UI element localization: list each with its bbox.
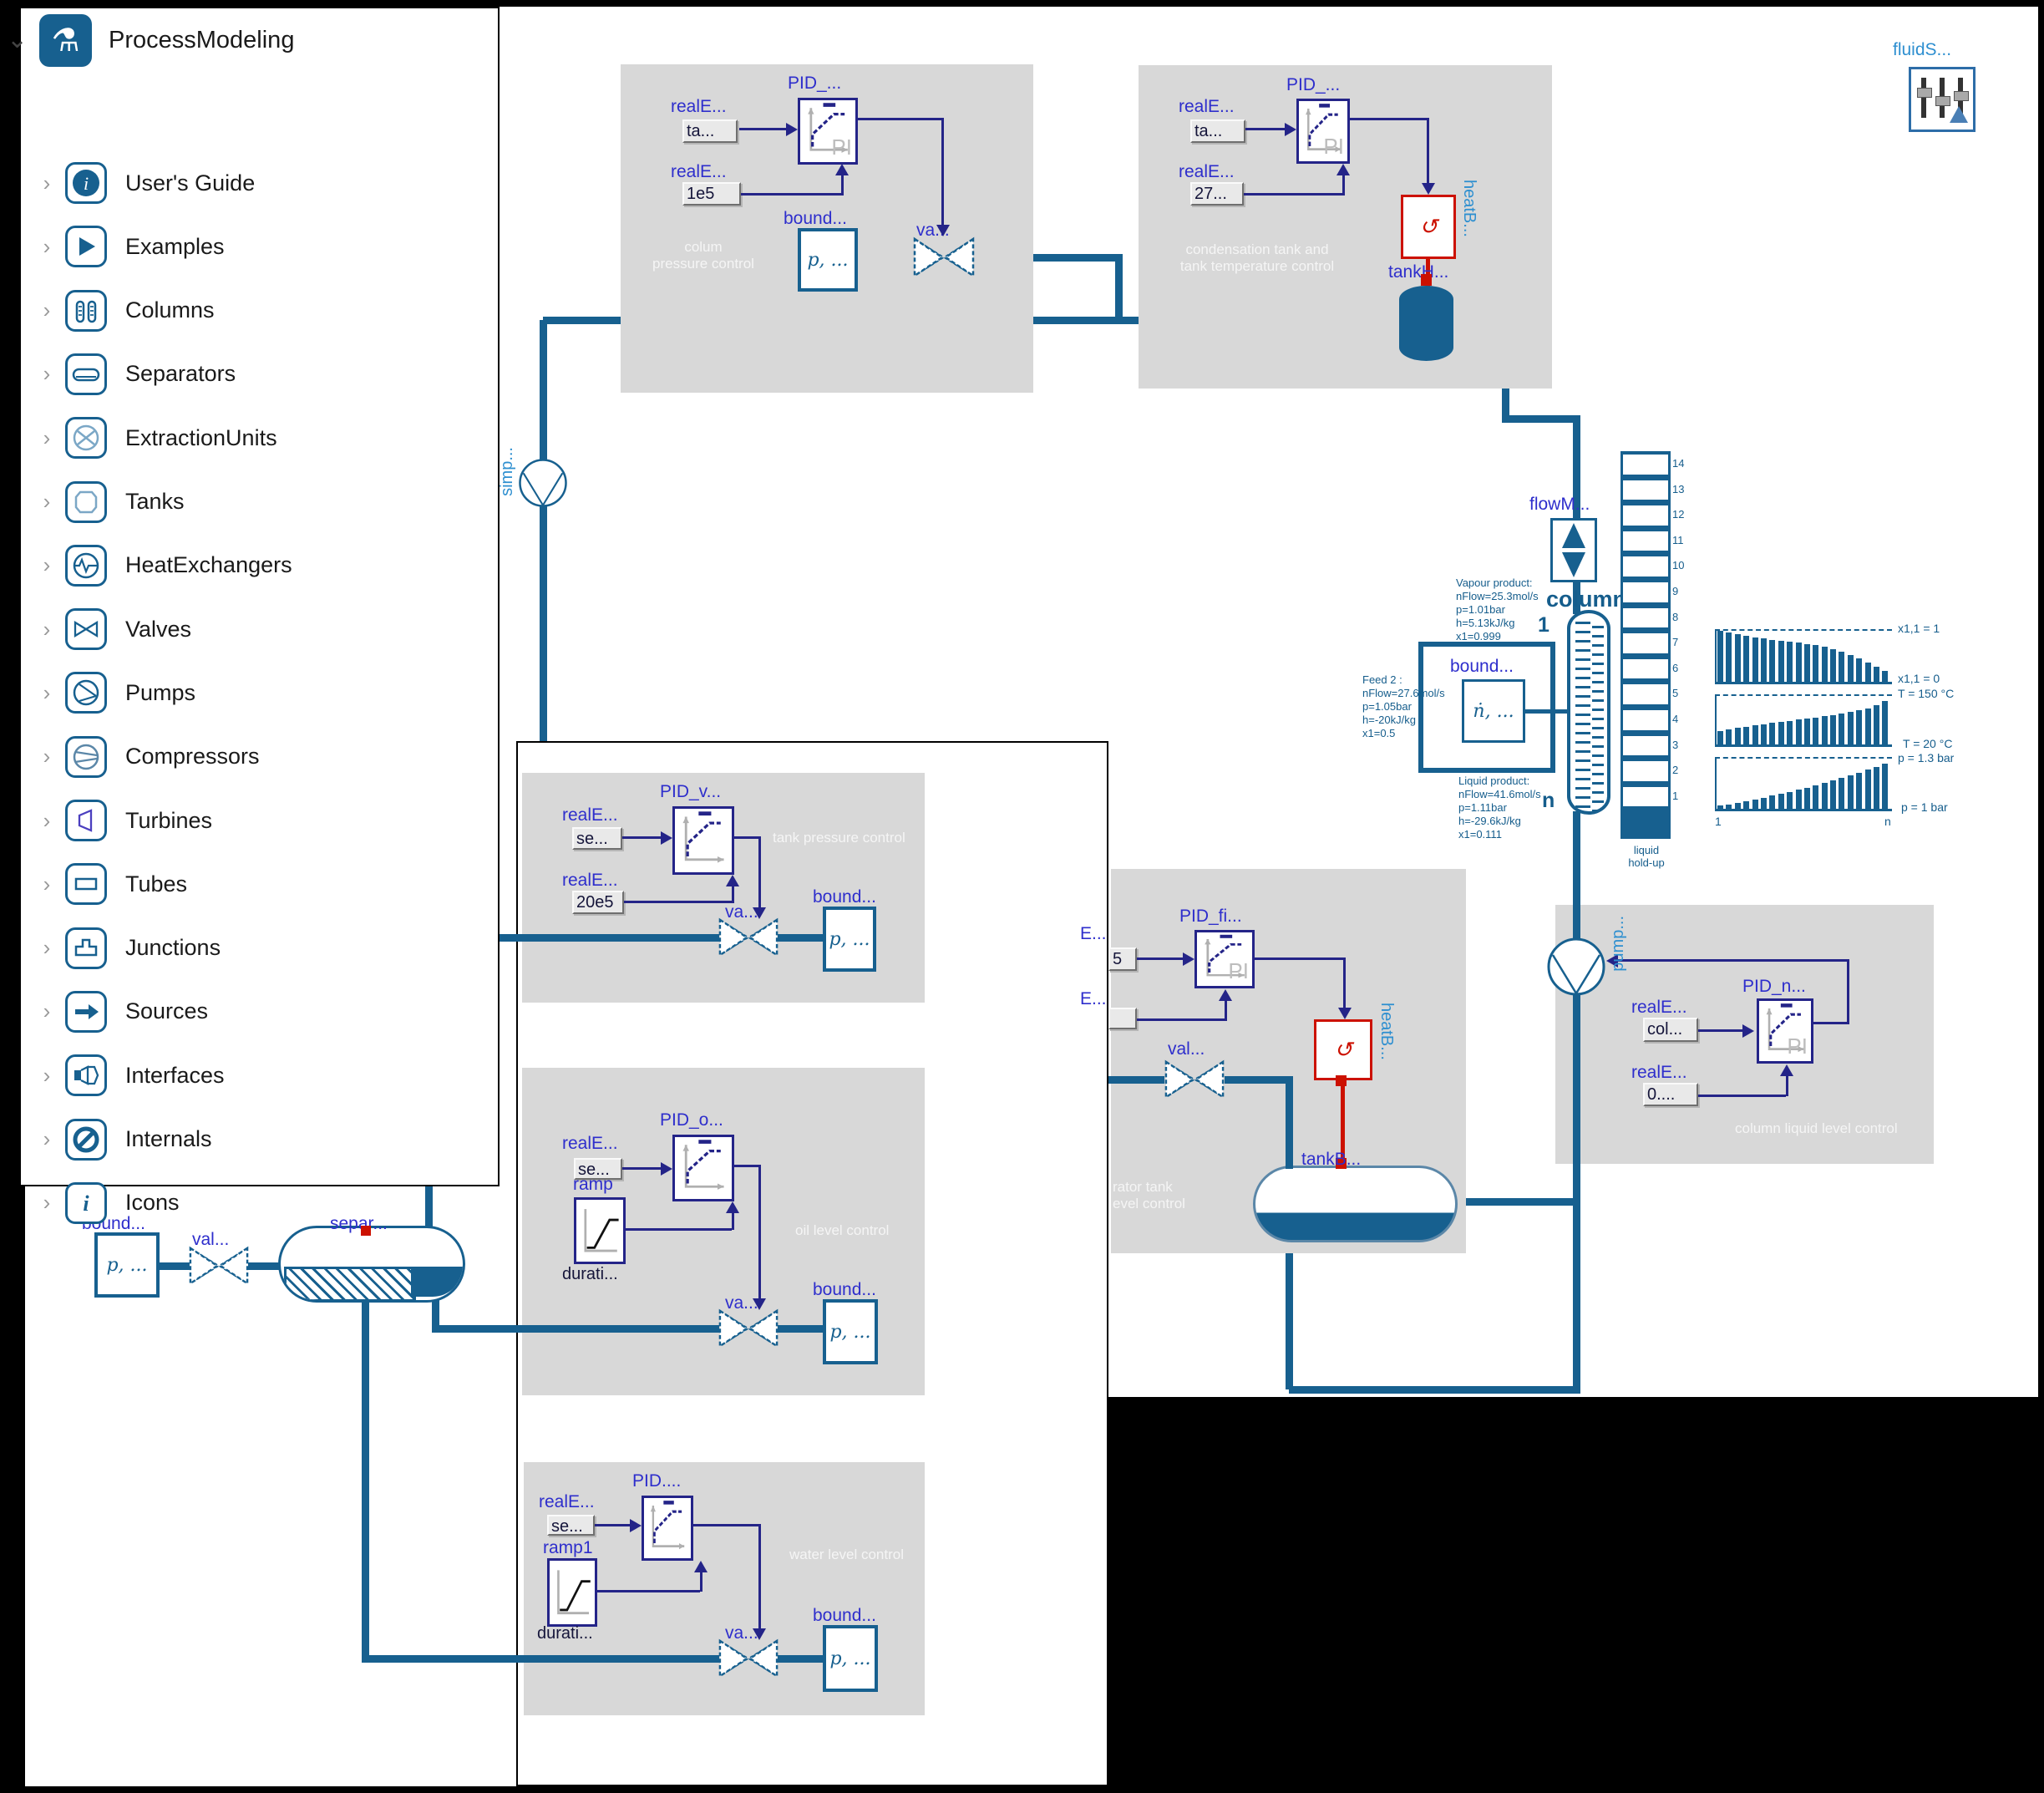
chevron-right-icon[interactable]: › [35,998,58,1024]
ramp-duration-label: durati... [562,1265,618,1284]
signal-wire [1137,1018,1225,1021]
sidebar-item-columns[interactable]: › Columns [0,279,2044,343]
arrow-right-icon [661,1162,672,1176]
fluid-source-block[interactable] [1909,67,1976,132]
boundary-sink[interactable]: p, ... [823,1625,878,1692]
realE-label: realE... [1179,97,1235,117]
control-valve[interactable] [718,1638,779,1679]
tank-pressure-control-title: tank pressure control [773,830,905,846]
sidebar-item-heatexchangers[interactable]: › HeatExchangers [0,534,2044,597]
realE-ref-block[interactable] [1108,1008,1137,1029]
pid-controller[interactable] [672,1135,734,1201]
signal-wire [758,1165,761,1298]
tube-icon [65,863,107,905]
internal-icon [65,1119,107,1161]
chevron-right-icon[interactable]: › [35,808,58,834]
separator-icon [65,353,107,395]
pid-label: PID_v... [660,782,721,802]
play-icon [65,226,107,267]
svg-text:i: i [84,173,89,194]
compressor-icon [65,736,107,778]
info-icon: i [65,162,107,204]
pid-controller[interactable] [672,806,734,875]
turbine-icon [65,800,107,841]
realE-setpoint-block[interactable]: 5 [1108,947,1137,971]
signal-wire [732,885,734,903]
arrow-up-icon [694,1561,708,1572]
sidebar-item-extractionunits[interactable]: › ExtractionUnits [0,406,2044,470]
sidebar-item-sources[interactable]: › Sources [0,980,2044,1044]
pipe [1286,1244,1293,1389]
columns-icon [65,290,107,332]
pid-label: PID.... [632,1471,681,1491]
feed-valve[interactable] [188,1246,250,1286]
pid-label: PID_o... [660,1110,723,1130]
pipe [160,1262,190,1270]
pid-label: PID_... [1286,75,1340,95]
chevron-right-icon[interactable]: › [35,297,58,323]
svg-text:i: i [83,1191,89,1216]
fluid-source-label: fluidS... [1893,40,1951,60]
arrow-right-icon [630,1519,642,1532]
signal-wire [626,1228,732,1231]
realE-label: E... [1080,989,1107,1009]
sidebar-item-interfaces[interactable]: › Interfaces [0,1044,2044,1107]
ramp-label: ramp1 [543,1538,593,1558]
sidebar-item-turbines[interactable]: › Turbines [0,789,2044,852]
pipe [432,1325,516,1333]
control-valve[interactable] [718,1308,779,1349]
signal-wire [700,1571,702,1592]
sidebar-item-separators[interactable]: › Separators [0,343,2044,406]
signal-wire [1245,128,1286,130]
realE-setpoint-block[interactable]: se... [572,827,622,850]
ramp-duration-label: durati... [537,1624,593,1643]
tank-icon [65,481,107,523]
realE-label: realE... [562,871,618,891]
signal-wire [597,1590,700,1592]
arrow-down-icon [753,1298,766,1310]
pid-controller[interactable] [642,1496,693,1561]
chevron-right-icon[interactable]: › [35,617,58,643]
chevron-right-icon[interactable]: › [35,871,58,897]
signal-wire [693,1524,758,1526]
pipe [778,1655,824,1663]
pipe [778,1325,824,1333]
pipe [362,1655,516,1663]
slider-knob-icon [1935,96,1950,106]
boundary-sink[interactable]: p, ... [823,1299,878,1364]
bound-label: bound... [813,1606,876,1626]
sidebar-item-examples[interactable]: › Examples [0,215,2044,278]
app-canvas: colum pressure control realE... ta... re… [0,0,2044,1793]
chevron-right-icon[interactable]: › [35,170,58,196]
sidebar-item-compressors[interactable]: › Compressors [0,725,2044,789]
realE-setpoint-block[interactable]: se... [547,1515,595,1536]
sidebar-item-junctions[interactable]: › Junctions [0,917,2044,980]
signal-wire [739,128,786,130]
sidebar-item-internals[interactable]: › Internals [0,1108,2044,1171]
ramp-block[interactable] [574,1197,626,1264]
sidebar-item-tubes[interactable]: › Tubes [0,852,2044,916]
arrow-right-icon [1285,123,1296,136]
sidebar-item-valves[interactable]: › Valves [0,597,2044,661]
chevron-right-icon[interactable]: › [35,1126,58,1152]
arrow-up-icon [726,1201,739,1213]
signal-wire [595,1524,631,1526]
ramp-label: ramp [573,1175,613,1195]
slider-knob-icon [1917,88,1932,98]
arrow-up-icon [726,875,739,886]
realE-label: realE... [539,1492,595,1512]
chevron-right-icon[interactable]: › [35,744,58,770]
signal-wire [1137,957,1184,960]
sidebar-item-tanks[interactable]: › Tanks [0,470,2044,534]
signal-wire [758,1524,761,1628]
realE-label: realE... [562,1134,618,1154]
signal-wire [734,1165,758,1167]
pipe [1289,1386,1580,1394]
chevron-right-icon[interactable]: › [35,361,58,387]
bound-label: bound... [813,887,876,907]
signal-wire [1350,118,1427,120]
extraction-icon [65,417,107,459]
control-valve[interactable] [718,917,779,957]
water-phase [284,1267,416,1302]
chevron-right-icon[interactable]: › [35,935,58,961]
signal-wire [732,1211,734,1230]
arrow-right-icon [1183,952,1194,966]
realE-setpoint-block[interactable]: ta... [682,119,738,143]
slider-knob-icon [1954,91,1969,101]
signal-wire [622,1167,662,1170]
pipe [248,1262,280,1270]
heat-exchanger-icon [65,545,107,587]
arrow-down-icon [753,1628,766,1640]
pump-icon [65,672,107,714]
boundary-source[interactable]: p, ... [94,1232,160,1298]
pipe [516,934,719,942]
sidebar-item-user-s-guide[interactable]: › i User's Guide [0,151,2044,215]
italic-i-icon: i [65,1182,107,1224]
separator-vessel[interactable] [278,1226,465,1303]
pipe [516,1655,719,1663]
processmodeling-icon[interactable]: ⚗ [39,14,92,67]
flask-icon [1950,106,1968,123]
realE-setpoint-block[interactable]: ta... [1190,119,1245,143]
sidebar-item-pumps[interactable]: › Pumps [0,661,2044,724]
realE-label: realE... [671,97,727,117]
pipe [362,1298,369,1662]
water-level-control-title: water level control [789,1547,904,1563]
tree-collapse-chevron[interactable]: ⌄ [7,25,28,54]
slider-icon [1921,78,1926,118]
chevron-right-icon[interactable]: › [35,425,58,451]
pipe [778,934,824,942]
valve-icon [65,608,107,650]
signal-wire [622,836,662,839]
signal-wire [734,836,758,839]
library-root-label[interactable]: ProcessModeling [109,27,294,54]
flask-icon: ⚗ [51,22,79,59]
chevron-right-icon[interactable]: › [35,1063,58,1089]
chevron-right-icon[interactable]: › [35,489,58,515]
bound-label: bound... [813,1280,876,1300]
arrow-down-icon [753,907,766,919]
arrow-right-icon [661,831,672,845]
realE-ref-block[interactable]: 20e5 [572,891,624,914]
ramp-block[interactable] [547,1558,597,1627]
source-icon [65,991,107,1033]
signal-wire [758,836,761,907]
pipe [516,1325,719,1333]
chevron-right-icon[interactable]: › [35,1190,58,1216]
chevron-right-icon[interactable]: › [35,552,58,578]
oil-level-control-title: oil level control [795,1222,889,1239]
chevron-right-icon[interactable]: › [35,234,58,260]
chevron-right-icon[interactable]: › [35,680,58,706]
pid-label: PID_... [788,74,841,94]
interface-icon [65,1054,107,1096]
realE-label: E... [1080,924,1107,944]
junction-icon [65,927,107,969]
sidebar-item-icons[interactable]: › i Icons [0,1171,2044,1235]
signal-wire [858,118,941,120]
arrow-right-icon [786,123,798,136]
signal-wire [624,901,732,903]
boundary-sink[interactable]: p, ... [823,907,876,972]
realE-label: realE... [562,805,618,825]
